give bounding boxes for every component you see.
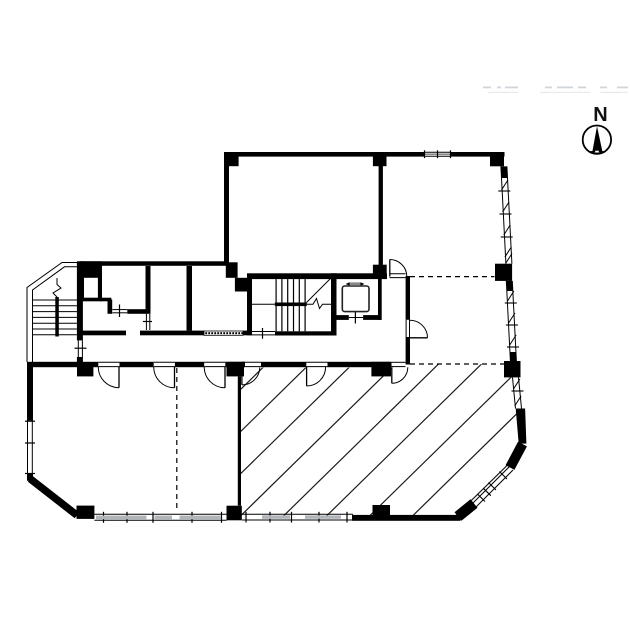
svg-text:N: N	[593, 104, 607, 126]
